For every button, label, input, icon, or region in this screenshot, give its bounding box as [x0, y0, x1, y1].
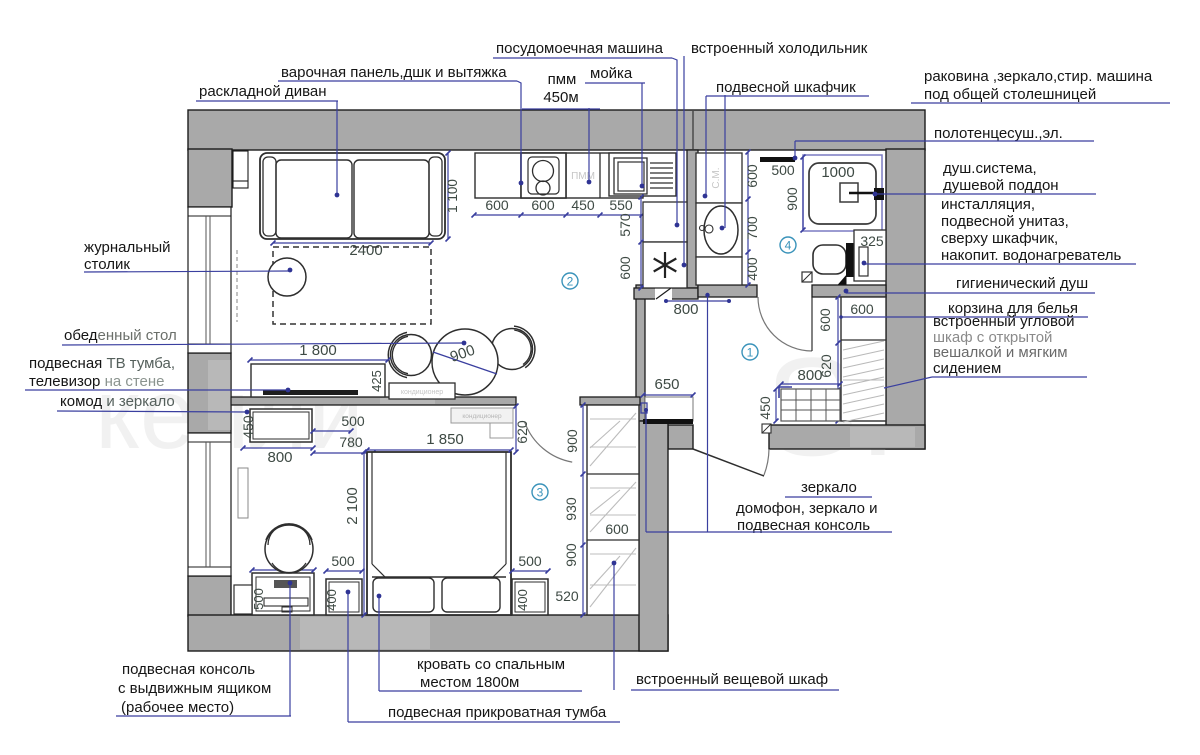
svg-text:800: 800: [797, 367, 822, 384]
svg-text:сидением: сидением: [933, 360, 1001, 377]
svg-text:1000: 1000: [821, 164, 854, 181]
svg-text:ПММ: ПММ: [571, 171, 595, 182]
svg-text:кондиционер: кондиционер: [401, 389, 443, 396]
svg-text:гигиенический душ: гигиенический душ: [956, 275, 1088, 292]
svg-text:400: 400: [744, 257, 760, 281]
svg-text:2: 2: [567, 275, 574, 289]
svg-text:500: 500: [331, 553, 355, 569]
svg-text:2400: 2400: [349, 242, 382, 259]
svg-text:раковина ,зеркало,стир. машина: раковина ,зеркало,стир. машина: [924, 68, 1153, 85]
svg-text:мойка: мойка: [590, 65, 633, 82]
svg-text:пмм: пмм: [548, 71, 577, 88]
svg-text:местом 1800м: местом 1800м: [420, 674, 519, 691]
svg-text:подвесная ТВ тумба,: подвесная ТВ тумба,: [29, 355, 175, 372]
svg-text:подвесной унитаз,: подвесной унитаз,: [941, 213, 1069, 230]
svg-text:450: 450: [757, 396, 773, 420]
svg-text:500: 500: [251, 588, 266, 610]
svg-text:800: 800: [673, 301, 698, 318]
svg-text:600: 600: [605, 521, 629, 537]
svg-text:под общей столешницей: под общей столешницей: [924, 86, 1096, 103]
svg-text:сверху шкафчик,: сверху шкафчик,: [941, 230, 1058, 247]
svg-text:450: 450: [240, 415, 256, 439]
svg-text:3: 3: [537, 486, 544, 500]
svg-text:журнальный: журнальный: [84, 239, 171, 256]
svg-text:550: 550: [609, 197, 633, 213]
svg-text:600: 600: [485, 197, 509, 213]
svg-text:встроенный вещевой шкаф: встроенный вещевой шкаф: [636, 671, 828, 688]
svg-text:600: 600: [744, 164, 760, 188]
svg-text:780: 780: [339, 434, 363, 450]
svg-text:4: 4: [785, 239, 792, 253]
svg-text:душ.система,: душ.система,: [943, 160, 1037, 177]
svg-text:полотенцесуш.,эл.: полотенцесуш.,эл.: [934, 125, 1063, 142]
svg-text:столик: столик: [84, 256, 130, 273]
svg-text:(рабочее место): (рабочее место): [121, 699, 234, 716]
svg-text:600: 600: [817, 308, 833, 332]
svg-text:1 850: 1 850: [426, 431, 464, 448]
svg-text:800: 800: [267, 449, 292, 466]
svg-text:400: 400: [515, 589, 530, 611]
svg-text:посудомоечная машина: посудомоечная машина: [496, 40, 664, 57]
svg-text:подвесной шкафчик: подвесной шкафчик: [716, 79, 856, 96]
svg-text:570: 570: [617, 213, 633, 237]
svg-text:500: 500: [341, 413, 365, 429]
svg-text:с выдвижным ящиком: с выдвижным ящиком: [118, 680, 271, 697]
svg-text:варочная панель,дшк и вытяжка: варочная панель,дшк и вытяжка: [281, 64, 507, 81]
svg-text:вешалкой и мягким: вешалкой и мягким: [933, 344, 1068, 361]
svg-text:накопит. водонагреватель: накопит. водонагреватель: [941, 247, 1122, 264]
svg-text:900: 900: [564, 429, 580, 453]
svg-text:400: 400: [324, 589, 339, 611]
svg-text:телевизор на стене: телевизор на стене: [29, 373, 165, 390]
svg-text:700: 700: [744, 216, 760, 240]
svg-text:душевой поддон: душевой поддон: [943, 177, 1059, 194]
svg-text:325: 325: [860, 233, 884, 249]
svg-text:2 100: 2 100: [344, 487, 361, 525]
svg-text:600: 600: [531, 197, 555, 213]
svg-text:1 800: 1 800: [299, 342, 337, 359]
svg-text:кондиционер: кондиционер: [462, 413, 502, 420]
svg-text:450: 450: [571, 197, 595, 213]
svg-text:450м: 450м: [543, 89, 578, 106]
svg-text:930: 930: [563, 497, 579, 521]
svg-text:С.М.: С.М.: [711, 167, 722, 188]
svg-text:500: 500: [518, 553, 542, 569]
svg-text:900: 900: [563, 543, 579, 567]
svg-text:кровать со спальным: кровать со спальным: [417, 656, 565, 673]
svg-text:650: 650: [654, 376, 679, 393]
svg-text:600: 600: [617, 256, 633, 280]
svg-text:обеденный стол: обеденный стол: [64, 327, 177, 344]
svg-text:встроенный холодильник: встроенный холодильник: [691, 40, 868, 57]
svg-text:600: 600: [850, 301, 874, 317]
svg-text:подвесная прикроватная тумба: подвесная прикроватная тумба: [388, 704, 607, 721]
svg-text:900: 900: [784, 187, 800, 211]
svg-text:1 100: 1 100: [445, 179, 460, 213]
svg-text:инсталляция,: инсталляция,: [941, 196, 1035, 213]
svg-text:комод и зеркало: комод и зеркало: [60, 393, 175, 410]
svg-text:зеркало: зеркало: [801, 479, 857, 496]
svg-text:раскладной диван: раскладной диван: [199, 83, 327, 100]
svg-text:520: 520: [555, 588, 579, 604]
svg-text:1: 1: [747, 346, 754, 360]
svg-text:домофон, зеркало и: домофон, зеркало и: [736, 500, 878, 517]
svg-text:620: 620: [514, 420, 530, 444]
svg-text:подвесная консоль: подвесная консоль: [122, 661, 255, 678]
svg-text:425: 425: [369, 370, 384, 392]
svg-text:встроенный угловой: встроенный угловой: [933, 313, 1075, 330]
svg-text:500: 500: [771, 162, 795, 178]
